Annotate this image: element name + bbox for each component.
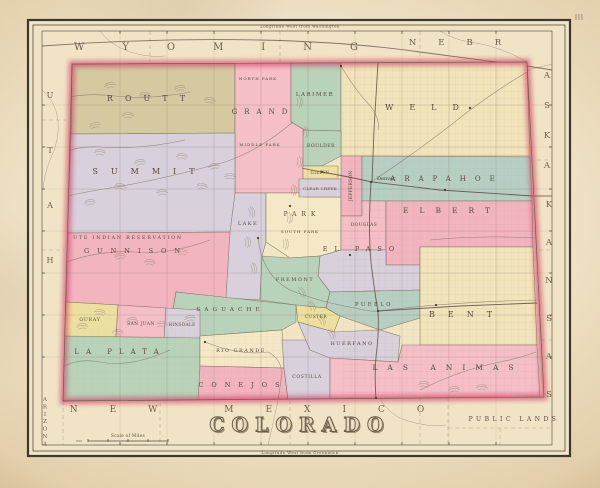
top-longitude-caption: Longitude West from Washington: [260, 24, 340, 29]
county-label-costilla: COSTILLA: [292, 374, 322, 380]
county-summit: [67, 133, 235, 233]
county-label-gunnison: GUNNISON: [84, 247, 188, 255]
middle-park-label: MIDDLE PARK: [239, 142, 280, 147]
county-label-conejos: CONEJOS: [198, 381, 287, 389]
county-label-huerfano: HUERFANO: [330, 341, 373, 347]
county-label-hinsdale: HINSDALE: [168, 322, 195, 327]
wyoming-label: WYOMING: [74, 42, 396, 53]
county-label-bent: BENT: [429, 310, 505, 319]
county-label-el-paso: EL PASO: [323, 245, 401, 253]
county-label-grand: GRAND: [232, 108, 295, 116]
county-label-lake: LAKE: [238, 221, 258, 227]
town-dot: [204, 341, 206, 343]
county-label-clear-creek: CLEAR CREEK: [303, 186, 338, 191]
bottom-longitude-caption: Longitude West from Greenwich: [261, 450, 338, 455]
county-label-routt: ROUTT: [107, 94, 197, 103]
south-park-label: SOUTH PARK: [281, 229, 319, 234]
town-dot-denver: [370, 181, 372, 183]
kansas-label-letter: S: [546, 314, 552, 324]
ute-reservation-label: UTE INDIAN RESERVATION: [73, 235, 183, 241]
utah-label-letter: H: [47, 256, 54, 265]
county-label-custer: CUSTER: [305, 315, 328, 320]
kansas-label-letter: S: [546, 390, 552, 400]
town-dot: [321, 171, 323, 173]
county-label-saguache: SAGUACHE: [196, 307, 263, 313]
county-label-pueblo: PUEBLO: [355, 302, 393, 308]
county-label-larimer: LARIMER: [296, 92, 334, 98]
town-dot: [377, 310, 379, 312]
nebraska-label-v-letter: A: [543, 71, 551, 81]
town-dot: [444, 189, 446, 191]
county-label-la-plata: LA PLATA: [74, 348, 165, 356]
town-dot: [340, 65, 342, 67]
county-label-ouray: OURAY: [79, 317, 100, 323]
county-label-las-animas: LAS ANIMAS: [372, 363, 523, 372]
nebraska-label-v-letter: A: [543, 161, 551, 171]
county-label-douglas: DOUGLAS: [351, 223, 377, 228]
town-dot: [375, 397, 377, 399]
town-dot: [435, 304, 437, 306]
county-label-boulder: BOULDER: [307, 143, 335, 149]
county-label-park: PARK: [284, 211, 321, 218]
county-label-weld: WELD: [385, 103, 475, 112]
county-label-arapahoe: ARAPAHOE: [389, 175, 503, 183]
county-label-rio-grande: RIO GRANDE: [216, 348, 266, 354]
county-label-san-juan: SAN JUAN: [127, 322, 155, 327]
nebraska-label-h: NEBR: [409, 38, 523, 48]
atlas-page: ROUTTGRANDLARIMERWELDSUMMITGUNNISONLAKEP…: [0, 0, 600, 488]
map-title: COLORADO: [0, 413, 452, 436]
town-dot: [257, 237, 259, 239]
county-label-summit: SUMMIT: [92, 167, 207, 176]
county-label-gilpin: GILPIN: [311, 170, 330, 175]
page-number-mark: [576, 14, 582, 20]
township-grid-southwest: [63, 330, 288, 402]
utah-label-letter: T: [47, 146, 53, 155]
county-label-fremont: FREMONT: [276, 277, 314, 283]
town-dot: [349, 254, 351, 256]
utah-label-letter: A: [46, 201, 53, 210]
nebraska-label-v-letter: S: [544, 101, 550, 111]
nebraska-label-v-letter: K: [544, 131, 551, 141]
county-label-elbert: ELBERT: [403, 206, 501, 215]
town-dot: [289, 205, 291, 207]
town-label-denver: Denver: [377, 176, 396, 182]
utah-label-letter: U: [47, 91, 54, 100]
public-lands-label: PUBLIC LANDS: [469, 416, 560, 423]
town-dot: [469, 107, 471, 109]
county-label-jefferson: JEFFERSON: [349, 171, 354, 203]
north-park-label: NORTH PARK: [239, 76, 277, 81]
